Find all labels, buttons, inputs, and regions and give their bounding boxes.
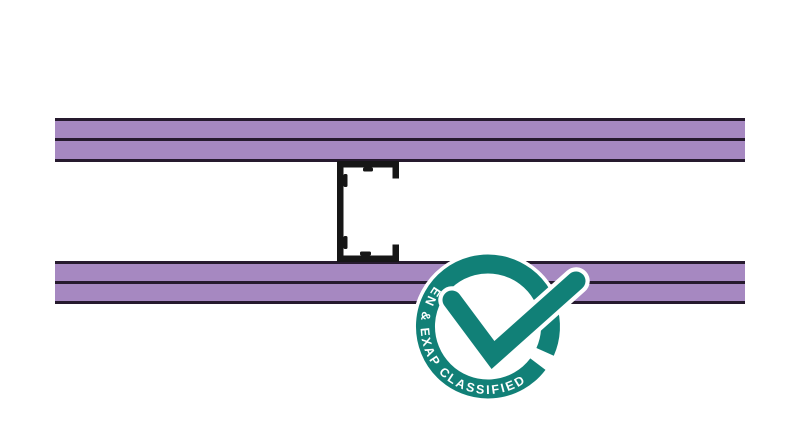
stud-top-flange-dimple: [363, 168, 373, 172]
bottom-board-layer-joint: [55, 281, 745, 284]
top-board-outer-edge: [55, 118, 745, 121]
stud-top-flange: [337, 161, 399, 168]
stud-web-knurl-bottom: [344, 236, 348, 249]
bottom-board-assembly: [55, 261, 745, 304]
stud-web: [337, 161, 344, 262]
stud-web-knurl-top: [344, 174, 348, 187]
stud-bottom-flange-dimple: [360, 252, 371, 256]
bottom-board-outer-edge: [55, 301, 745, 304]
stud-bottom-lip: [393, 245, 400, 263]
top-board-inner-edge: [55, 159, 745, 162]
top-board-assembly: [55, 118, 745, 162]
top-board-layer-joint: [55, 138, 745, 141]
stud-top-lip: [393, 161, 400, 179]
diagram-canvas: EN & EXAP CLASSIFIED: [0, 0, 800, 425]
wall-section-diagram: EN & EXAP CLASSIFIED: [0, 0, 800, 425]
bottom-board-inner-edge: [55, 261, 745, 264]
c-stud-section: [337, 161, 399, 262]
stud-bottom-flange: [337, 256, 399, 263]
